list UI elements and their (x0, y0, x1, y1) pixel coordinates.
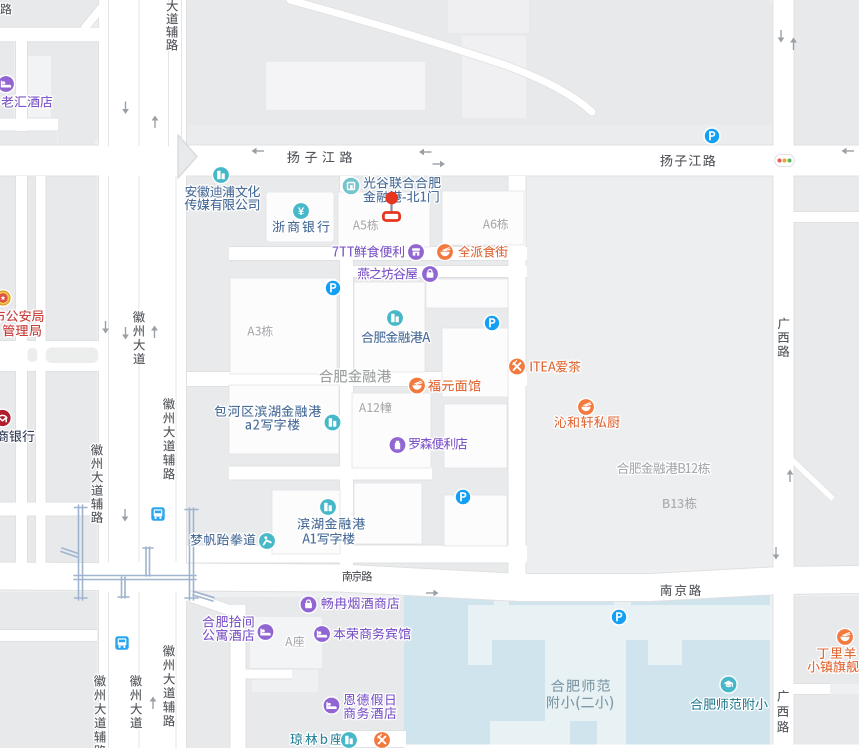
svg-text:B13栋: B13栋 (662, 493, 697, 512)
svg-text:合肥金融港A: 合肥金融港A (361, 327, 430, 346)
svg-text:浙商银行: 浙商银行 (272, 217, 330, 236)
svg-text:商银行: 商银行 (0, 426, 35, 445)
svg-text:路: 路 (163, 711, 176, 730)
svg-text:沁和轩私厨: 沁和轩私厨 (554, 412, 620, 431)
svg-text:琼林b座: 琼林b座 (290, 729, 343, 748)
svg-text:燕之坊谷屋: 燕之坊谷屋 (357, 264, 418, 283)
svg-text:罗森便利店: 罗森便利店 (408, 434, 468, 453)
svg-text:扬子江路: 扬子江路 (660, 151, 717, 170)
svg-text:公寓酒店: 公寓酒店 (202, 625, 255, 644)
svg-text:路: 路 (0, 0, 12, 17)
svg-text:7TT鲜食便利: 7TT鲜食便利 (332, 242, 405, 261)
svg-text:路: 路 (91, 507, 104, 526)
svg-text:管理局: 管理局 (2, 321, 42, 340)
svg-text:A3栋: A3栋 (247, 323, 273, 340)
svg-text:全派食街: 全派食街 (458, 242, 508, 261)
svg-text:路: 路 (777, 717, 790, 736)
svg-text:合肥师范附小: 合肥师范附小 (690, 694, 768, 713)
svg-text:合肥金融港B12栋: 合肥金融港B12栋 (617, 458, 711, 477)
svg-text:a2写字楼: a2写字楼 (245, 415, 300, 434)
svg-text:道: 道 (130, 713, 143, 732)
svg-text:老汇酒店: 老汇酒店 (1, 92, 53, 111)
svg-text:附小(二小): 附小(二小) (546, 693, 614, 713)
svg-text:A1写字楼: A1写字楼 (302, 529, 355, 548)
svg-text:南京路: 南京路 (660, 580, 704, 599)
svg-text:A座: A座 (285, 633, 305, 650)
svg-text:路: 路 (163, 464, 176, 483)
svg-text:A5栋: A5栋 (353, 217, 379, 234)
svg-text:金融港-北1门: 金融港-北1门 (363, 187, 440, 206)
svg-text:福元面馆: 福元面馆 (427, 376, 481, 395)
svg-text:传媒有限公司: 传媒有限公司 (185, 195, 261, 214)
svg-text:路: 路 (166, 35, 179, 54)
svg-text:南京路: 南京路 (342, 569, 374, 585)
svg-text:梦帆跆拳道: 梦帆跆拳道 (190, 530, 256, 549)
svg-text:A6栋: A6栋 (483, 216, 509, 233)
svg-text:道: 道 (133, 349, 146, 368)
svg-text:ITEA爱茶: ITEA爱茶 (529, 357, 582, 376)
svg-text:合肥金融港: 合肥金融港 (319, 366, 392, 387)
svg-text:畅冉烟酒商店: 畅冉烟酒商店 (321, 593, 400, 612)
svg-text:路: 路 (94, 741, 107, 749)
svg-text:商务酒店: 商务酒店 (343, 703, 397, 722)
svg-text:路: 路 (777, 341, 790, 360)
svg-text:扬子江路: 扬子江路 (287, 147, 357, 166)
svg-text:小镇旗舰店: 小镇旗舰店 (807, 657, 859, 676)
svg-text:A12幢: A12幢 (359, 399, 392, 416)
svg-text:本荣商务宾馆: 本荣商务宾馆 (333, 624, 411, 643)
